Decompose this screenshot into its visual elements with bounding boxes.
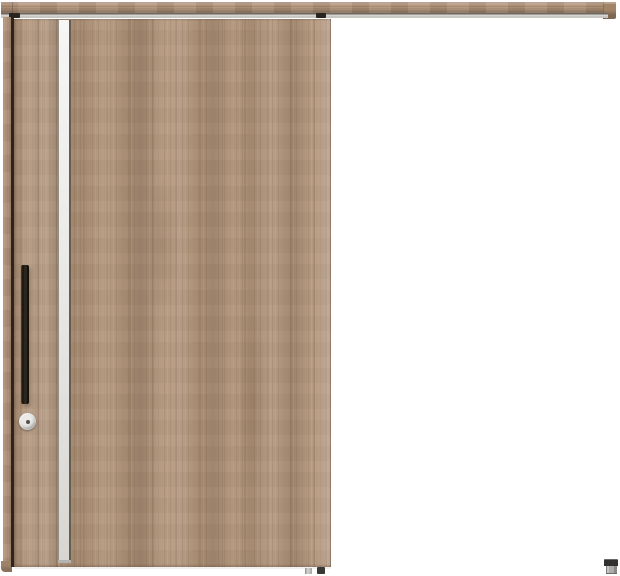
thumb-turn-lock[interactable] (19, 413, 36, 430)
door-right-edge (325, 19, 331, 567)
accent-strip (58, 20, 71, 560)
under-door-shadow (14, 567, 331, 569)
sliding-door-panel[interactable] (14, 19, 331, 567)
rail-track (1, 13, 608, 18)
bar-handle[interactable] (21, 265, 29, 404)
wood-grain-figure (144, 169, 180, 319)
wood-grain-figure (239, 309, 267, 489)
floor-guide-silver (305, 568, 312, 574)
product-image-canvas (0, 0, 620, 576)
rail-seam (12, 2, 13, 13)
floor-door-stop-base (606, 566, 617, 574)
door-hanger-right (316, 13, 326, 18)
frame-post (3, 17, 11, 567)
floor-door-stop-cap (604, 559, 618, 566)
floor-guide-dark (317, 567, 325, 574)
